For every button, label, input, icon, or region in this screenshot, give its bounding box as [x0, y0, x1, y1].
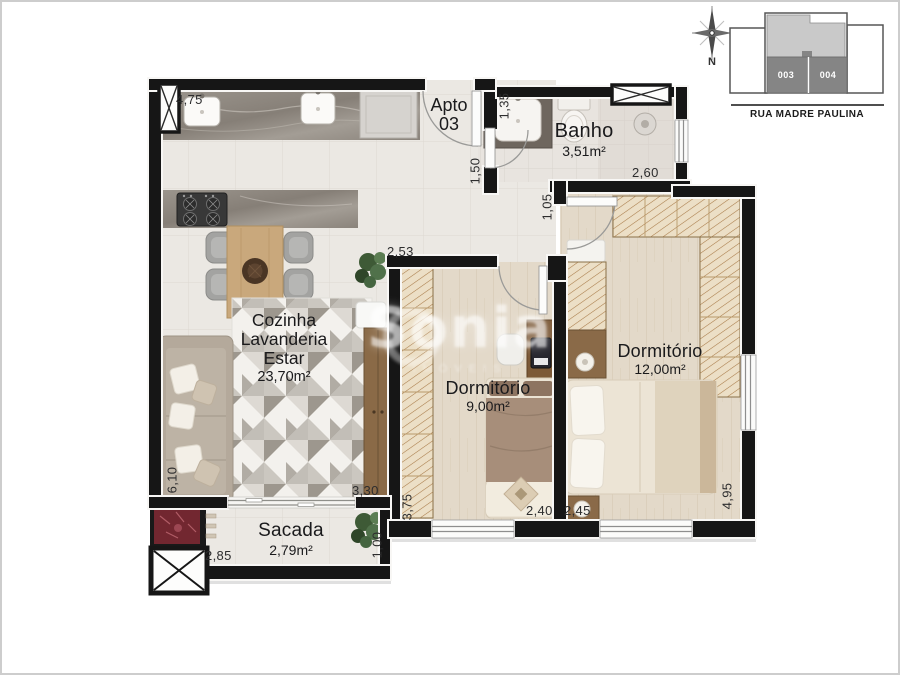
dimension-dorm2-depth: 4,95 — [720, 483, 735, 510]
fridge — [360, 91, 417, 138]
room-area: 3,51m² — [544, 144, 624, 159]
sliding-door — [228, 497, 355, 508]
dimension-dorm2-width: 2,45 — [564, 503, 591, 518]
north-label: N — [703, 56, 721, 68]
unit-003-label: 003 — [766, 70, 806, 80]
room-area: 9,00m² — [428, 399, 548, 414]
building-footprint — [728, 8, 886, 103]
bed-dorm2 — [565, 380, 717, 494]
street-line — [731, 104, 884, 106]
wardrobe-dorm2-left — [565, 262, 606, 330]
shower-head — [634, 113, 656, 135]
wardrobe-dorm2-top — [613, 196, 740, 237]
room-area: 12,00m² — [599, 362, 721, 377]
room-name: Cozinha — [214, 311, 354, 330]
banho-door-leaf — [485, 128, 495, 168]
dimension-dorm1-hall-width: 2,53 — [387, 244, 414, 259]
apartment-label: Apto 03 — [417, 96, 481, 135]
shaft-icon-banho — [612, 85, 670, 104]
room-label-sacada: Sacada 2,79m² — [243, 521, 339, 558]
dimension-dorm1-width: 2,40 — [526, 503, 553, 518]
dimension-kitchen-top: 4,75 — [176, 92, 203, 107]
street-name: RUA MADRE PAULINA — [726, 109, 888, 120]
room-name: Estar — [214, 349, 354, 368]
apartment-label-line1: Apto — [417, 96, 481, 115]
room-name: Dormitório — [428, 379, 548, 398]
room-area: 2,79m² — [243, 543, 339, 558]
dimension-entry-hall: 1,50 — [468, 158, 483, 185]
dimension-sacada-width: 2,85 — [205, 548, 232, 563]
dimension-living-bottom: 3,30 — [352, 483, 379, 498]
dimension-dorm1-depth: 3,75 — [400, 494, 415, 521]
room-name: Dormitório — [599, 342, 721, 361]
room-name: Lavanderia — [214, 330, 354, 349]
dresser — [567, 240, 605, 262]
apartment-label-line2: 03 — [417, 115, 481, 134]
floorplan-page: N 003 004 RUA MADRE PAULINA Apto 03 Banh… — [0, 0, 900, 675]
dorm2-door-leaf — [567, 197, 617, 206]
room-label-banho: Banho 3,51m² — [544, 121, 624, 159]
dimension-living-depth: 6,10 — [165, 467, 180, 494]
side-shelf — [356, 302, 386, 328]
shaft-icon-balcony — [151, 548, 207, 593]
dimension-hall-passage: 1,05 — [540, 194, 555, 221]
dimension-banho-entry-depth: 1,35 — [497, 93, 512, 120]
unit-004-label: 004 — [808, 70, 848, 80]
room-label-living: Cozinha Lavanderia Estar 23,70m² — [214, 311, 354, 385]
room-area: 23,70m² — [214, 370, 354, 386]
dimension-sacada-depth: 1,00 — [370, 532, 385, 559]
room-name: Banho — [544, 121, 624, 143]
dorm1-door-leaf — [539, 266, 547, 314]
dimension-banho-width: 2,60 — [632, 165, 659, 180]
room-label-dorm2: Dormitório 12,00m² — [599, 342, 721, 378]
room-name: Sacada — [243, 521, 339, 542]
room-label-dorm1: Dormitório 9,00m² — [428, 379, 548, 415]
desk-chair — [497, 334, 524, 365]
